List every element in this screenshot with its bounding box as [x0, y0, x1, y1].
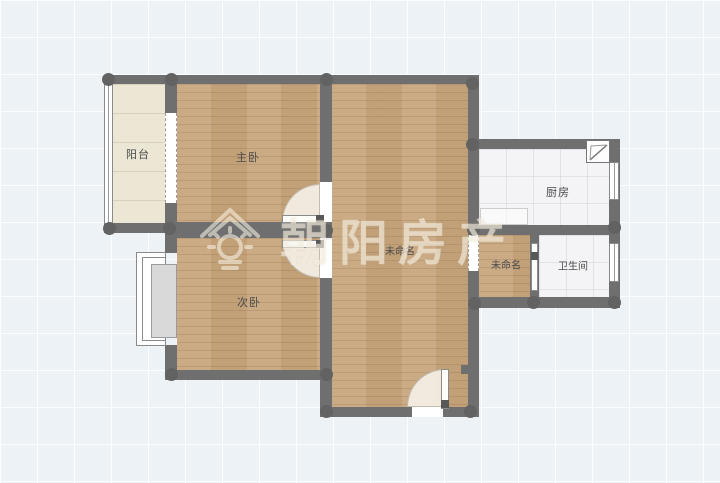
wall-secondbedroom-left-bottom [165, 345, 177, 370]
wall-balcony-master-top [165, 84, 177, 113]
wall-node [464, 405, 477, 418]
balcony-window [104, 84, 113, 224]
wall-node [320, 368, 333, 381]
watermark-text: 朝阳房产 [280, 204, 516, 275]
wall-secondbedroom-bottom [165, 370, 332, 380]
room-label-balcony: 阳台 [126, 146, 150, 162]
wall-entry-jamb [461, 365, 468, 374]
bathroom-window [609, 243, 619, 282]
watermark-house-icon [198, 202, 262, 274]
wall-node [320, 405, 333, 418]
wall-master-hall [320, 84, 332, 182]
room-label-bathroom: 卫生间 [558, 258, 588, 273]
window-mullion [108, 85, 109, 223]
room-label-kitchen: 厨房 [546, 184, 570, 200]
wall-node [103, 222, 116, 235]
wall-node [527, 296, 540, 309]
opening-balcony-master [165, 113, 177, 203]
entry-door-hinge [441, 400, 449, 408]
kitchen-window [609, 162, 619, 200]
window-mullion [614, 163, 615, 199]
wall-node [466, 138, 479, 151]
flue-diagonal [587, 141, 611, 164]
wall-node [163, 222, 176, 235]
wall-node [165, 73, 178, 86]
bay-window-sill [151, 264, 177, 338]
flue-icon [586, 140, 610, 163]
wall-node [608, 221, 621, 234]
wall-hall-bottom-left [320, 407, 412, 417]
watermark: 朝阳房产 [198, 200, 538, 280]
floorplan-canvas: 阳台 主卧 未命名 次卧 厨房 未命名 卫生间 朝阳房产 [0, 0, 720, 483]
wall-node [468, 297, 481, 310]
wall-top [104, 75, 478, 84]
wall-secondbedroom-hall [320, 278, 332, 417]
wall-node [320, 73, 333, 86]
window-mullion [614, 244, 615, 281]
wall-block-bottom [468, 297, 620, 308]
wall-node [608, 296, 621, 309]
wall-balcony-master-bottom [165, 203, 177, 222]
wall-node [102, 73, 115, 86]
wall-node [165, 368, 178, 381]
doorway-entry [412, 407, 443, 417]
wall-secondbedroom-left-top [165, 238, 177, 253]
room-label-master-bedroom: 主卧 [236, 149, 260, 165]
wall-hall-right-lower [468, 271, 479, 417]
room-label-second-bedroom: 次卧 [237, 294, 261, 310]
wall-node [466, 77, 479, 90]
